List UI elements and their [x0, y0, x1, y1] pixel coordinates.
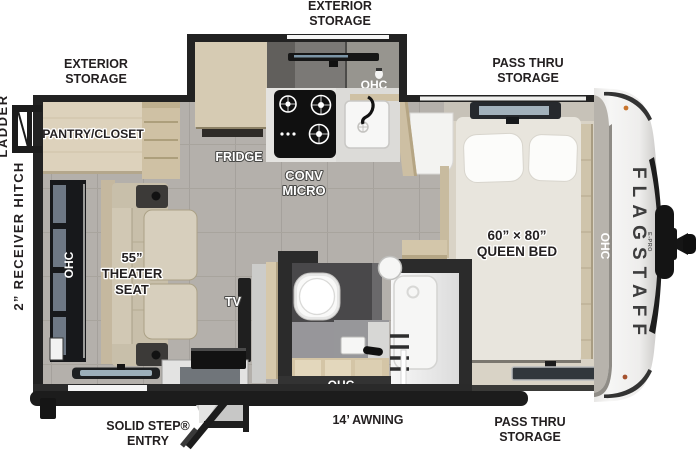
svg-text:STORAGE: STORAGE [497, 71, 559, 85]
svg-text:STORAGE: STORAGE [65, 72, 127, 86]
svg-text:2” RECEIVER HITCH: 2” RECEIVER HITCH [11, 161, 26, 310]
svg-text:EXTERIOR: EXTERIOR [64, 57, 128, 71]
svg-text:QUEEN BED: QUEEN BED [477, 244, 558, 259]
svg-text:PASS THRU: PASS THRU [492, 56, 563, 70]
svg-text:STORAGE: STORAGE [499, 430, 561, 444]
svg-text:TV: TV [225, 295, 242, 309]
svg-text:THEATER: THEATER [102, 266, 163, 281]
svg-text:14’ AWNING: 14’ AWNING [332, 413, 403, 427]
svg-text:PANTRY/CLOSET: PANTRY/CLOSET [42, 127, 144, 141]
svg-text:CONV: CONV [285, 168, 323, 183]
svg-text:60” × 80”: 60” × 80” [488, 228, 547, 243]
svg-text:SOLID STEP®: SOLID STEP® [106, 419, 190, 433]
svg-text:FRIDGE: FRIDGE [215, 150, 262, 164]
svg-text:EXTERIOR: EXTERIOR [308, 0, 372, 13]
svg-text:FLAGSTAFF: FLAGSTAFF [628, 167, 649, 335]
svg-text:OHC: OHC [598, 233, 612, 260]
svg-text:SEAT: SEAT [115, 282, 149, 297]
svg-text:MICRO: MICRO [282, 183, 325, 198]
svg-text:E-PRO: E-PRO [646, 232, 652, 252]
svg-text:PASS THRU: PASS THRU [494, 415, 565, 429]
svg-text:STORAGE: STORAGE [309, 14, 371, 28]
svg-text:ENTRY: ENTRY [127, 434, 170, 448]
svg-text:OHC: OHC [62, 251, 76, 278]
svg-text:55”: 55” [122, 250, 143, 265]
svg-text:LADDER: LADDER [0, 94, 10, 157]
